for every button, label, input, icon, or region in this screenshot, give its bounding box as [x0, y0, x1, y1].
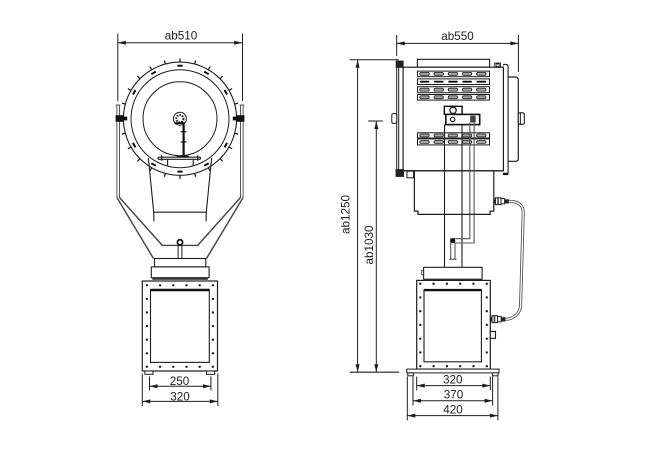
- svg-text:370: 370: [444, 389, 464, 402]
- svg-text:ab1030: ab1030: [363, 225, 376, 265]
- svg-text:250: 250: [170, 375, 190, 388]
- svg-text:ab510: ab510: [165, 30, 198, 43]
- svg-text:ab550: ab550: [441, 30, 474, 43]
- svg-text:420: 420: [443, 403, 463, 416]
- svg-text:320: 320: [170, 391, 190, 404]
- svg-text:320: 320: [443, 373, 463, 386]
- svg-text:ab1250: ab1250: [340, 195, 353, 235]
